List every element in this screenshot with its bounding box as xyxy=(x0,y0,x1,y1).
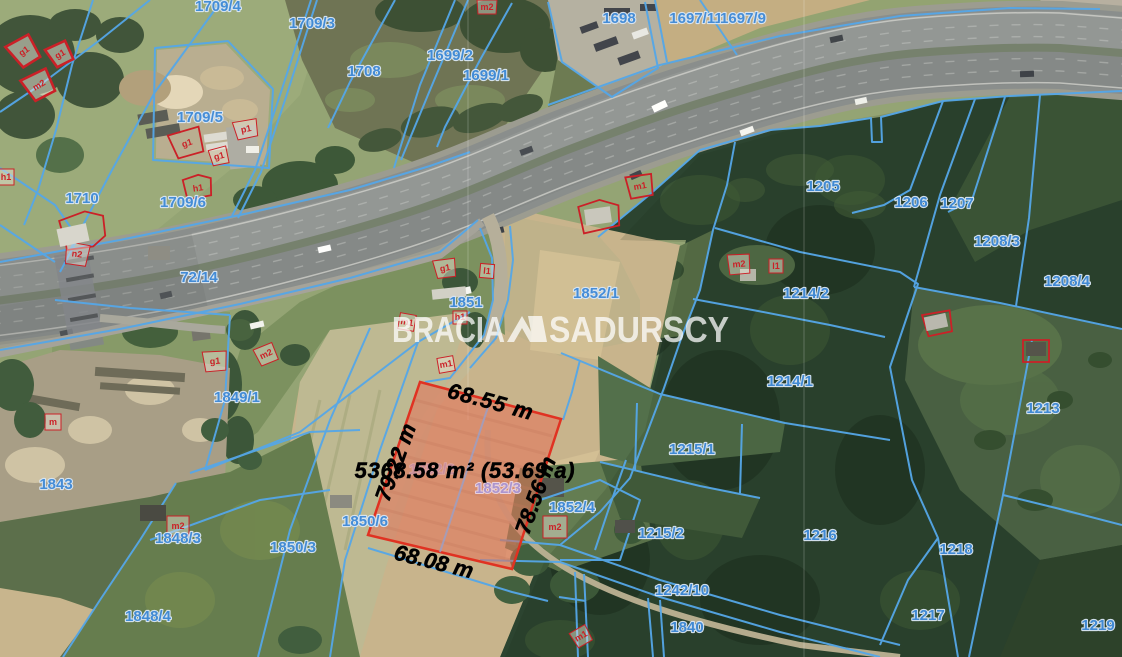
svg-text:SADURSCY: SADURSCY xyxy=(549,309,729,350)
svg-text:72/14: 72/14 xyxy=(180,269,218,286)
svg-text:g1: g1 xyxy=(209,356,220,367)
svg-text:1697/11: 1697/11 xyxy=(669,10,722,27)
svg-text:1710: 1710 xyxy=(65,190,98,207)
svg-text:1709/5: 1709/5 xyxy=(177,109,223,126)
svg-text:1697/9: 1697/9 xyxy=(720,10,766,27)
svg-text:1215/1: 1215/1 xyxy=(669,441,715,458)
svg-text:1843: 1843 xyxy=(39,476,72,493)
svg-text:1848/4: 1848/4 xyxy=(125,608,172,625)
svg-text:1852/4: 1852/4 xyxy=(549,499,596,516)
svg-text:1698: 1698 xyxy=(602,10,635,27)
svg-text:1214/2: 1214/2 xyxy=(783,285,829,302)
svg-text:1840: 1840 xyxy=(670,619,703,636)
svg-text:1217: 1217 xyxy=(911,607,944,624)
svg-text:1852/1: 1852/1 xyxy=(573,285,619,302)
svg-text:m2: m2 xyxy=(548,522,561,532)
svg-text:1205: 1205 xyxy=(806,178,839,195)
svg-text:1213: 1213 xyxy=(1026,400,1059,417)
svg-text:BRACIA: BRACIA xyxy=(392,309,505,350)
svg-text:1214/1: 1214/1 xyxy=(767,373,813,390)
svg-text:n2: n2 xyxy=(71,248,83,259)
svg-text:1850/6: 1850/6 xyxy=(342,513,388,530)
svg-text:h1: h1 xyxy=(192,182,204,193)
svg-text:1206: 1206 xyxy=(894,194,927,211)
svg-text:1208/4: 1208/4 xyxy=(1044,273,1091,290)
svg-text:m2: m2 xyxy=(480,2,493,12)
svg-text:1709/6: 1709/6 xyxy=(160,194,206,211)
svg-text:g1: g1 xyxy=(439,262,451,274)
svg-text:1848/3: 1848/3 xyxy=(155,530,201,547)
svg-text:h1: h1 xyxy=(1,172,12,182)
svg-text:1218: 1218 xyxy=(939,541,972,558)
svg-text:1708: 1708 xyxy=(347,63,380,80)
svg-text:p1: p1 xyxy=(240,123,252,135)
svg-text:m2: m2 xyxy=(732,258,746,269)
svg-text:1219: 1219 xyxy=(1081,617,1114,634)
svg-text:l1: l1 xyxy=(772,261,780,271)
svg-text:1709/4: 1709/4 xyxy=(195,0,242,15)
svg-text:1215/2: 1215/2 xyxy=(638,525,684,542)
svg-text:l1: l1 xyxy=(483,266,491,277)
svg-text:1242/10: 1242/10 xyxy=(655,582,709,599)
svg-text:m: m xyxy=(49,417,57,427)
svg-text:1709/3: 1709/3 xyxy=(289,15,335,32)
svg-text:1850/3: 1850/3 xyxy=(270,539,316,556)
svg-text:1699/2: 1699/2 xyxy=(427,47,473,64)
svg-text:1699/1: 1699/1 xyxy=(463,67,509,84)
svg-text:1216: 1216 xyxy=(803,527,836,544)
svg-text:1849/1: 1849/1 xyxy=(214,389,260,406)
svg-text:1207: 1207 xyxy=(940,195,973,212)
svg-text:1208/3: 1208/3 xyxy=(974,233,1020,250)
